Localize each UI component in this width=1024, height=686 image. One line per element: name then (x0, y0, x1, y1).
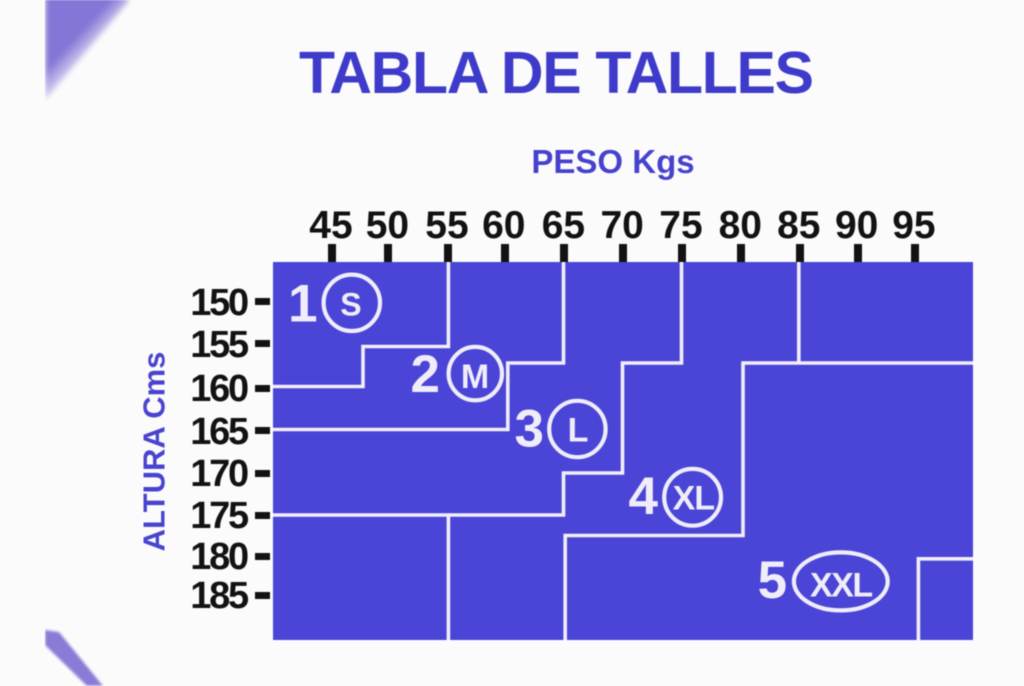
svg-text:XL: XL (673, 480, 715, 518)
svg-text:S: S (340, 287, 361, 323)
svg-text:L: L (568, 411, 589, 449)
svg-text:1: 1 (288, 275, 317, 334)
svg-text:4: 4 (628, 467, 658, 526)
svg-text:5: 5 (758, 551, 787, 610)
svg-text:2: 2 (410, 345, 439, 404)
svg-text:XXL: XXL (810, 566, 872, 604)
svg-text:3: 3 (515, 400, 544, 459)
svg-text:M: M (461, 358, 489, 396)
